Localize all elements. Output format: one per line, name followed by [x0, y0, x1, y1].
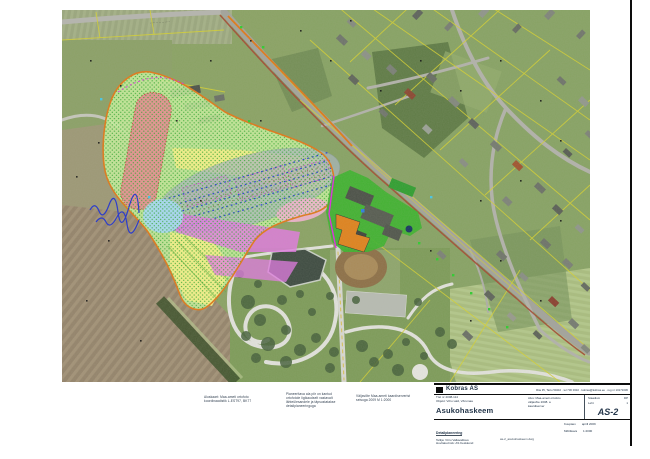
drawing-number: AS-2 — [586, 407, 630, 417]
title-block-main-row: Töö nr 2008-114 Objekt: Võru vald, Võrum… — [434, 395, 630, 420]
company-contact-info: Riia 35, Tartu 50410 · tel 730 0310 · ko… — [510, 388, 628, 392]
sheet-value: 1 — [626, 401, 628, 405]
date-label: Kuupäev — [564, 422, 576, 426]
scale-value: 1:2000 — [583, 429, 592, 433]
note-line: seisuga 2009 M 1:2000 — [356, 399, 432, 403]
photo-grain — [62, 10, 590, 382]
title-block-client-row: Detailplaneering Tellija: Võru Vallavali… — [434, 420, 630, 447]
drawing-sheet: ·············· Aluskaart: Maa-ameti orto… — [0, 0, 650, 459]
note-block-scale: Väljavõte Maa-ameti kaardiserverist seis… — [356, 395, 432, 403]
note-line: detailplaneeringuga — [286, 405, 360, 409]
project-line: Detailplaneering — [436, 431, 462, 437]
date-value: aprill 2009 — [582, 422, 596, 426]
stage-value: DP — [624, 396, 628, 400]
scale-label: Mõõtkava — [564, 429, 577, 433]
stakeholder-line: Huvitatud isik: AS Keskkond — [436, 442, 546, 446]
note-block-boundary: Planeeritava ala piir on kantud ortofoto… — [286, 393, 360, 409]
sheet-label: Leht — [588, 401, 594, 405]
company-logo — [436, 387, 443, 394]
file-name-line: as-2_asukohaskeem.dwg — [500, 437, 534, 441]
title-block: Kobras AS Riia 35, Tartu 50410 · tel 730… — [434, 383, 630, 448]
sheet-frame-line — [630, 0, 632, 446]
company-name: Kobras AS — [446, 386, 478, 392]
object-line: Objekt: Võru vald, Võrumaa — [436, 400, 524, 404]
note-line: koordinaadistik L-EST97, BK77 — [204, 400, 266, 404]
drawing-title: Asukohaskeem — [436, 406, 493, 415]
basemap-ref-line: kaardiserver — [528, 405, 582, 409]
column-divider — [584, 395, 585, 419]
title-block-company-row: Kobras AS Riia 35, Tartu 50410 · tel 730… — [434, 385, 630, 395]
stage-label: Staadium — [588, 396, 600, 400]
note-block-basemap: Aluskaart: Maa-ameti ortofoto koordinaad… — [204, 396, 266, 404]
